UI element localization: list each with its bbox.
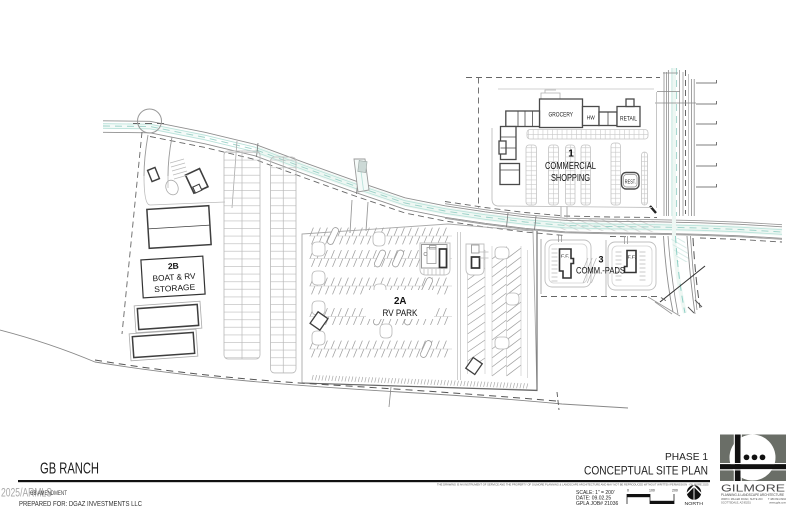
svg-text:PREPARED FOR: DGAZ INVESTMENTS: PREPARED FOR: DGAZ INVESTMENTS LLC	[19, 501, 142, 508]
svg-text:COMM.-PADS: COMM.-PADS	[576, 266, 625, 276]
svg-text:GROCERY: GROCERY	[549, 112, 574, 119]
svg-text:GPLA JOB# 21036: GPLA JOB# 21036	[576, 501, 618, 507]
svg-text:SHOPPING: SHOPPING	[551, 173, 590, 184]
svg-text:GB RANCH: GB RANCH	[40, 461, 99, 478]
svg-text:T 480.994.0994: T 480.994.0994	[768, 497, 787, 501]
svg-text:GB AMENDMENT: GB AMENDMENT	[30, 490, 67, 497]
svg-text:CONCEPTUAL SITE PLAN: CONCEPTUAL SITE PLAN	[584, 464, 708, 478]
svg-text:PLANNING & LANDSCAPE ARCHITECT: PLANNING & LANDSCAPE ARCHITECTURE	[721, 493, 784, 497]
svg-text:F.F.: F.F.	[628, 255, 637, 260]
svg-text:1: 1	[568, 149, 574, 160]
svg-text:2A: 2A	[394, 296, 407, 307]
svg-text:F.F.: F.F.	[561, 254, 570, 259]
svg-text:THE DRAWING IS AN INSTRUMENT O: THE DRAWING IS AN INSTRUMENT OF SERVICE …	[437, 483, 709, 487]
svg-text:200: 200	[672, 489, 678, 493]
svg-text:3: 3	[599, 255, 604, 265]
svg-text:0: 0	[627, 489, 629, 493]
svg-text:3638 N. MILLER ROAD, SUITE 200: 3638 N. MILLER ROAD, SUITE 200	[721, 497, 763, 501]
svg-text:PHASE 1: PHASE 1	[665, 451, 708, 463]
svg-text:www.gpla.com: www.gpla.com	[769, 501, 786, 505]
svg-text:COMMERCIAL: COMMERCIAL	[545, 161, 596, 172]
svg-text:REST.: REST.	[625, 180, 636, 186]
svg-text:HW: HW	[587, 116, 596, 122]
svg-text:RV PARK: RV PARK	[383, 308, 419, 318]
svg-text:2B: 2B	[168, 261, 179, 272]
svg-text:100: 100	[649, 489, 655, 493]
svg-text:RETAIL: RETAIL	[620, 115, 637, 122]
svg-text:NORTH: NORTH	[685, 501, 704, 506]
svg-text:SCOTTSDALE, AZ 85251: SCOTTSDALE, AZ 85251	[721, 501, 751, 505]
